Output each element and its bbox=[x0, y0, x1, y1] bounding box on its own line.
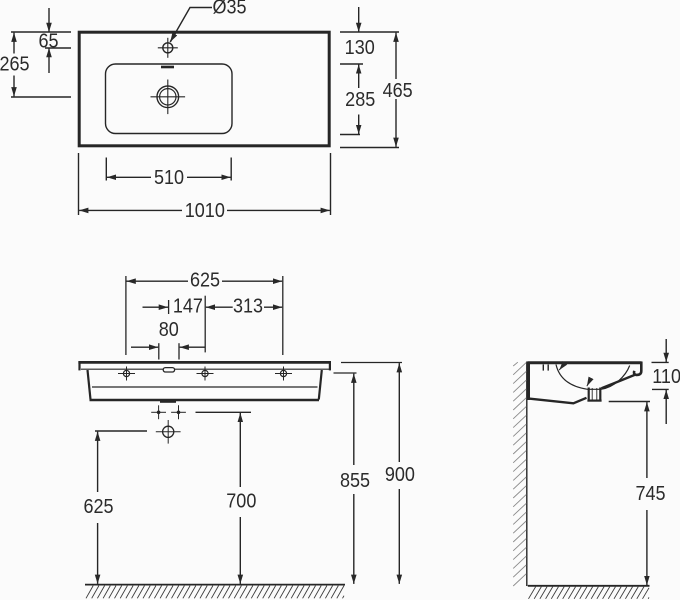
svg-text:313: 313 bbox=[233, 296, 263, 318]
svg-text:510: 510 bbox=[154, 167, 184, 189]
svg-text:130: 130 bbox=[345, 37, 375, 59]
svg-text:80: 80 bbox=[159, 319, 179, 341]
svg-text:700: 700 bbox=[226, 491, 256, 513]
svg-text:625: 625 bbox=[83, 496, 113, 518]
svg-text:625: 625 bbox=[190, 270, 220, 292]
svg-text:110: 110 bbox=[652, 366, 680, 388]
svg-text:745: 745 bbox=[635, 483, 665, 505]
svg-text:Ø35: Ø35 bbox=[212, 0, 246, 19]
svg-text:900: 900 bbox=[385, 464, 415, 486]
svg-text:1010: 1010 bbox=[185, 200, 225, 222]
svg-text:465: 465 bbox=[383, 80, 413, 102]
svg-text:285: 285 bbox=[345, 89, 375, 111]
svg-text:65: 65 bbox=[38, 30, 58, 52]
svg-text:147: 147 bbox=[173, 296, 203, 318]
svg-text:855: 855 bbox=[340, 470, 370, 492]
svg-text:265: 265 bbox=[0, 53, 30, 75]
